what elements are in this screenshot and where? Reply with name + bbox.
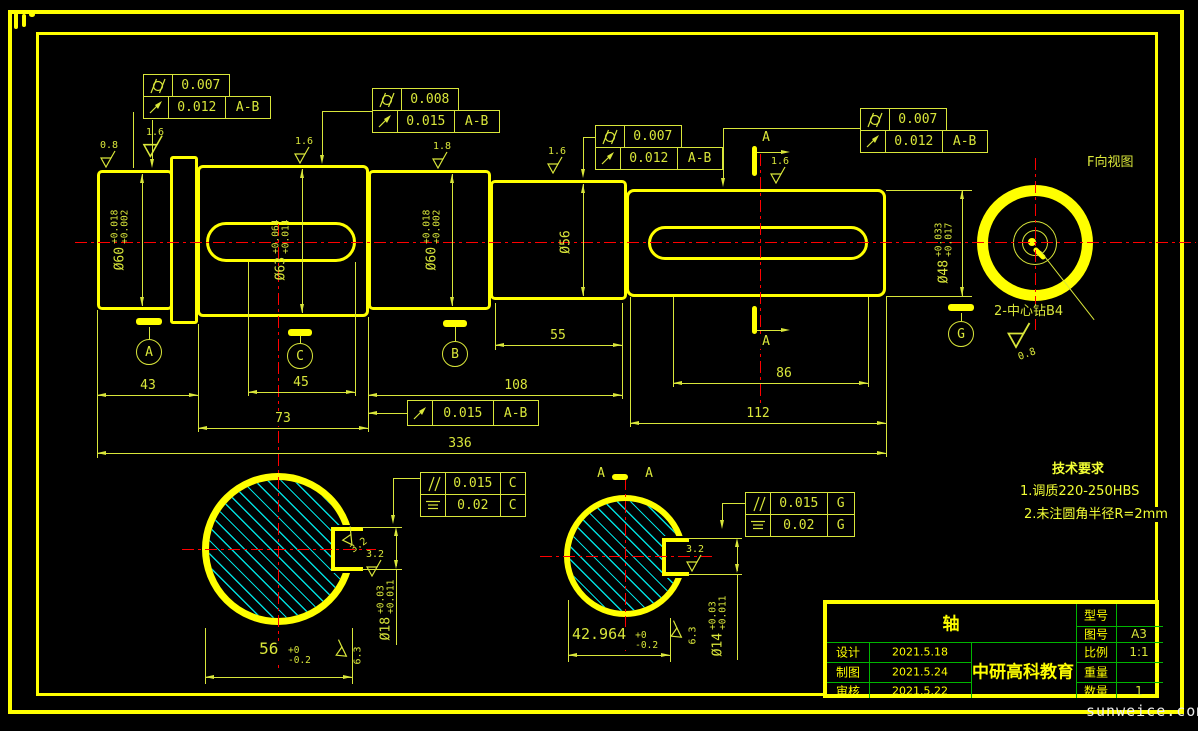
quantity-label: 数量 xyxy=(1084,683,1108,700)
audit-date: 2021.5.22 xyxy=(892,685,948,698)
aa-title-left: A xyxy=(595,466,607,481)
circular-runout-icon xyxy=(860,130,886,153)
fcf-section-aa: 0.015 G 0.02 G xyxy=(745,492,855,537)
part-name: 轴 xyxy=(943,610,960,635)
tech-line-2: 2.未注圆角半径R=2mm xyxy=(1022,507,1170,522)
circular-runout-icon xyxy=(143,96,169,119)
datum-reference: G xyxy=(827,492,855,515)
f-view-title: F向视图 xyxy=(1085,155,1135,170)
circular-runout-icon xyxy=(595,147,621,170)
dia-dim-s2: Ø63 +0.064+0.014 xyxy=(272,220,291,281)
roughness-icon xyxy=(770,166,786,184)
width-dim-42964: 42.964 +0-0.2 xyxy=(570,627,660,650)
tech-title: 技术要求 xyxy=(1050,462,1106,477)
roughness-icon xyxy=(294,146,310,164)
dim-86: 86 xyxy=(774,366,794,381)
roughness-value: 6.3 xyxy=(688,626,699,644)
datum-reference: A-B xyxy=(454,110,500,133)
dia-value: Ø60 xyxy=(113,247,128,270)
shaft-collar xyxy=(170,156,198,324)
dia-value: Ø56 xyxy=(559,230,574,253)
dia-dim-s4: Ø56 xyxy=(559,230,574,253)
dim-55: 55 xyxy=(548,328,568,343)
roughness-icon xyxy=(432,151,448,169)
dia-dim-s5: Ø48 +0.033+0.017 xyxy=(935,223,954,284)
roughness-icon xyxy=(547,156,563,174)
dia-dim-s1: Ø60 +0.018+0.002 xyxy=(111,210,130,271)
fcf-4: 0.007 0.012 A-B xyxy=(860,108,988,153)
tolerance-value: 0.02 xyxy=(770,514,828,537)
aa-title-bar xyxy=(612,474,628,480)
keyway-dim-18: Ø18 +0.03+0.011 xyxy=(377,580,396,641)
datum-bar-c xyxy=(288,329,312,336)
datum-reference: A-B xyxy=(493,400,539,426)
cad-drawing-canvas: 0.007 0.012 A-B 0.008 0.015 A-B 0.007 0.… xyxy=(0,0,1198,731)
dim-336: 336 xyxy=(446,436,473,451)
datum-reference: C xyxy=(500,494,526,517)
datum-reference: A-B xyxy=(677,147,723,170)
dim-43: 43 xyxy=(138,378,158,393)
draft-label: 制图 xyxy=(836,664,860,681)
fcf-5: 0.015 A-B xyxy=(407,400,539,426)
fcf-3: 0.007 0.012 A-B xyxy=(595,125,723,170)
cylindricity-icon xyxy=(143,74,173,97)
datum-bar-a xyxy=(136,318,162,325)
tolerance-value: 0.007 xyxy=(889,108,947,131)
datum-circle-a: A xyxy=(136,339,162,365)
drawing-no-label: 图号 xyxy=(1084,626,1108,643)
tolerance-value: 0.015 xyxy=(770,492,828,515)
tolerance-value: 0.015 xyxy=(432,400,494,426)
cylindricity-icon xyxy=(595,125,625,148)
tolerance-value: 0.015 xyxy=(397,110,455,133)
roughness-icon xyxy=(686,554,702,572)
circular-runout-icon xyxy=(407,400,433,426)
tolerance-value: 0.008 xyxy=(401,88,459,111)
cut-bar-top xyxy=(752,146,757,176)
roughness-icon xyxy=(366,559,382,577)
tolerance-value: 0.007 xyxy=(172,74,230,97)
scale-label: 比例 xyxy=(1084,644,1108,661)
fcf-1: 0.007 0.012 A-B xyxy=(143,74,271,119)
aa-title-right: A xyxy=(643,466,655,481)
tolerance-value: 0.012 xyxy=(885,130,943,153)
title-block: 轴 型号 图号 A3 比例 1:1 重量 数量 1 设计 2021.5.18 制… xyxy=(823,600,1159,698)
width-dim-56: 56 +0-0.2 xyxy=(257,641,313,665)
datum-reference: A-B xyxy=(225,96,271,119)
symmetry-icon xyxy=(745,514,771,537)
cut-bar-bottom xyxy=(752,306,757,334)
roughness-icon xyxy=(1007,322,1031,349)
roughness-icon xyxy=(100,150,116,168)
cut-letter-top: A xyxy=(760,130,772,145)
fcf-2: 0.008 0.015 A-B xyxy=(372,88,500,133)
datum-reference: A-B xyxy=(942,130,988,153)
watermark: sunweice.com xyxy=(1086,702,1198,720)
datum-bar-b xyxy=(443,320,467,327)
center-drill-note: 2-中心钻B4 xyxy=(992,304,1065,319)
roughness-icon xyxy=(143,134,164,157)
weight-label: 重量 xyxy=(1084,664,1108,681)
scale-value: 1:1 xyxy=(1129,645,1148,659)
datum-bar-g xyxy=(948,304,974,311)
dim-73: 73 xyxy=(273,411,293,426)
audit-label: 审核 xyxy=(836,683,860,700)
datum-reference: C xyxy=(500,472,526,495)
draft-date: 2021.5.24 xyxy=(892,666,948,679)
dia-value: Ø60 xyxy=(425,247,440,270)
tech-line-1: 1.调质220-250HBS xyxy=(1018,484,1141,499)
roughness-value: 6.3 xyxy=(353,646,364,664)
dim-108: 108 xyxy=(502,378,529,393)
dim-45: 45 xyxy=(291,375,311,390)
symmetry-icon xyxy=(420,494,446,517)
cylindricity-icon xyxy=(860,108,890,131)
dim-112: 112 xyxy=(744,406,771,421)
tolerance-value: 0.02 xyxy=(445,494,501,517)
design-label: 设计 xyxy=(836,644,860,661)
dia-dim-s3: Ø60 +0.018+0.002 xyxy=(423,210,442,271)
tolerance-value: 0.012 xyxy=(620,147,678,170)
design-date: 2021.5.18 xyxy=(892,646,948,659)
keyway-dim-14: Ø14 +0.03+0.011 xyxy=(709,596,728,657)
circular-runout-icon xyxy=(372,110,398,133)
tolerance-value: 0.015 xyxy=(445,472,501,495)
model-label: 型号 xyxy=(1084,607,1108,624)
shaft-section-1 xyxy=(97,170,173,310)
company-name: 中研高科教育 xyxy=(972,658,1074,683)
dia-value: Ø48 xyxy=(937,260,952,283)
tolerance-value: 0.012 xyxy=(168,96,226,119)
drawing-no-value: A3 xyxy=(1131,627,1147,641)
datum-reference: G xyxy=(827,514,855,537)
quantity-value: 1 xyxy=(1135,684,1143,698)
cylindricity-icon xyxy=(372,88,402,111)
parallelism-icon xyxy=(745,492,771,515)
tolerance-value: 0.007 xyxy=(624,125,682,148)
datum-circle-c: C xyxy=(287,343,313,369)
dia-value: Ø63 xyxy=(274,257,289,280)
datum-circle-b: B xyxy=(442,341,468,367)
fcf-section-c: 0.015 C 0.02 C xyxy=(420,472,526,517)
datum-circle-g: G xyxy=(948,321,974,347)
parallelism-icon xyxy=(420,472,446,495)
cut-letter-bottom: A xyxy=(760,334,772,349)
keyway-slot-2 xyxy=(648,226,868,260)
